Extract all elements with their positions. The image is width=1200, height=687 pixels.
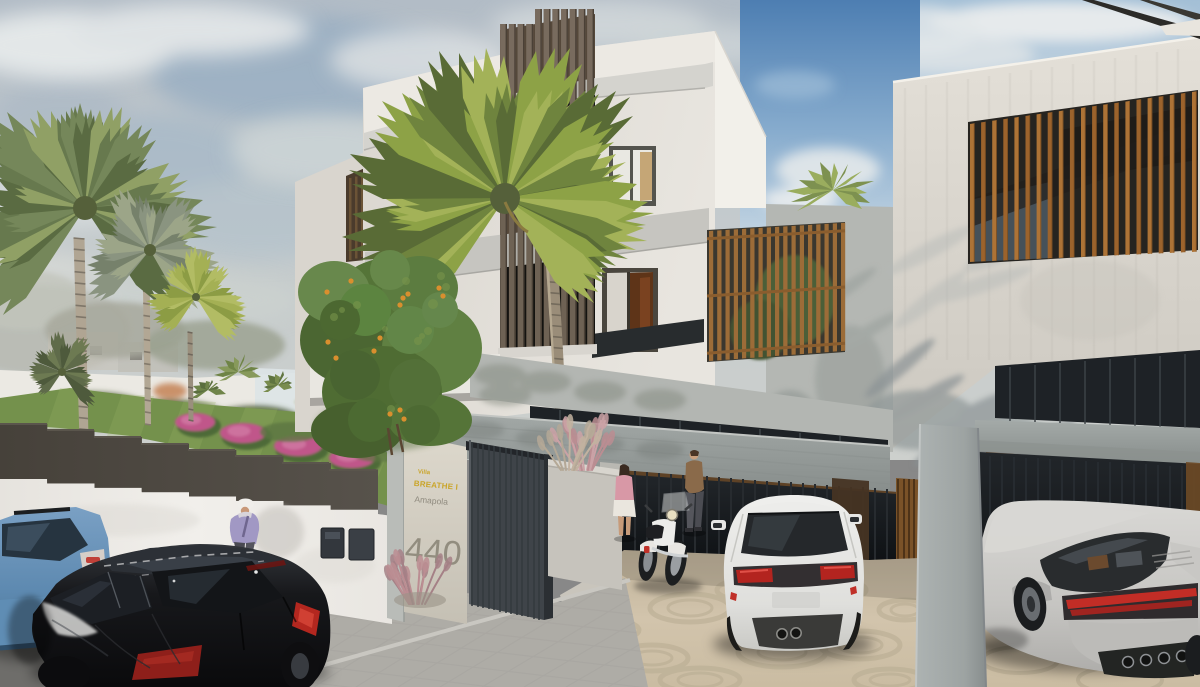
svg-text:Villa: Villa [418,469,431,476]
svg-text:440: 440 [403,530,463,573]
